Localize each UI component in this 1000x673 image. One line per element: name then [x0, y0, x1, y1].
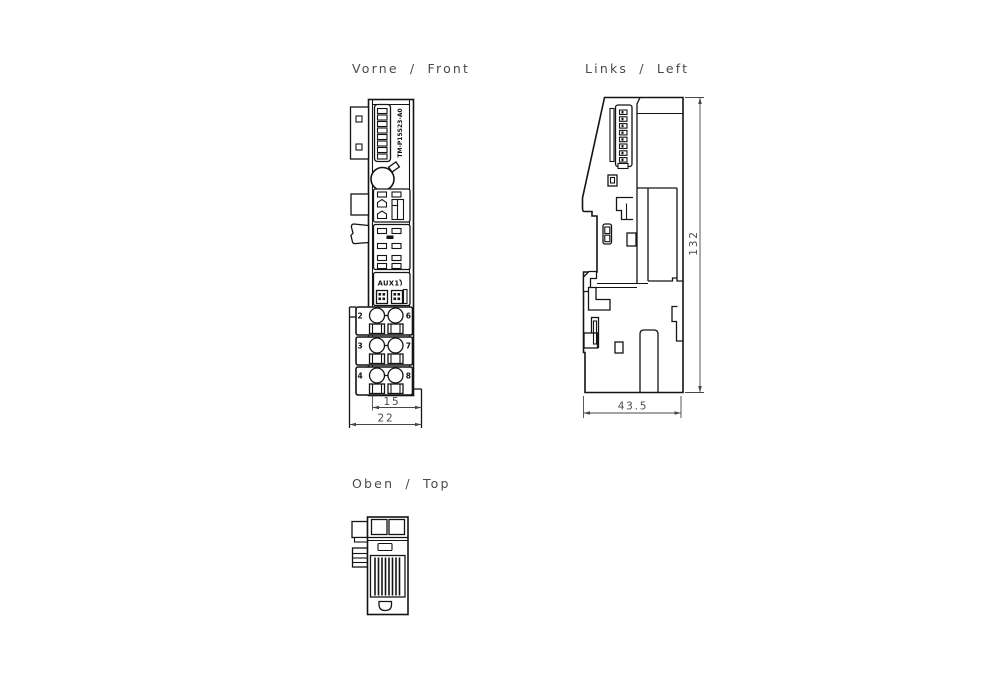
terminal-number: 7 — [406, 342, 411, 351]
top-body-outline — [368, 517, 409, 615]
front-view-label: Vorne / Front — [352, 61, 470, 76]
aux-label-text: AUX1 — [378, 280, 400, 288]
front-bus-connector — [351, 107, 369, 159]
left-bus-connector — [610, 105, 632, 169]
front-left-clip — [351, 224, 369, 244]
dim-43-5-text: 43.5 — [618, 401, 649, 413]
terminal-number: 4 — [358, 372, 363, 381]
front-section-a — [374, 189, 411, 222]
top-left-connectors — [352, 522, 368, 568]
dim-15-text: 15 — [384, 396, 401, 408]
terminal-number: 6 — [406, 312, 411, 321]
front-aux-section: AUX1 — [374, 273, 411, 306]
front-terminal-row-1: 2 6 — [356, 307, 413, 335]
dim-22-text: 22 — [378, 413, 395, 425]
front-terminal-row-3: 4 8 — [356, 367, 413, 395]
terminal-number: 2 — [358, 312, 363, 321]
left-view-drawing: 132 43.5 — [572, 85, 712, 425]
front-view-drawing: TM-P15S23-A0 — [344, 88, 440, 436]
front-section-b — [374, 225, 411, 270]
terminal-number: 8 — [406, 372, 411, 381]
front-knob-circle — [371, 168, 394, 191]
front-dimension-22: 22 — [350, 413, 422, 427]
left-view-label: Links / Left — [585, 61, 689, 76]
front-terminal-row-2: 3 7 — [356, 337, 413, 365]
top-view-drawing — [348, 503, 412, 621]
front-dimension-15: 15 — [373, 396, 422, 411]
left-dimension-132: 132 — [685, 98, 704, 393]
module-code-text: TM-P15S23-A0 — [397, 108, 404, 157]
front-left-tab — [351, 194, 369, 215]
dim-132-text: 132 — [688, 230, 700, 255]
left-dimension-43-5: 43.5 — [584, 396, 682, 418]
top-view-label: Oben / Top — [352, 476, 451, 491]
terminal-number: 3 — [358, 342, 363, 351]
dimension-drawing-page: Vorne / Front TM-P15S23-A0 — [0, 0, 1000, 673]
